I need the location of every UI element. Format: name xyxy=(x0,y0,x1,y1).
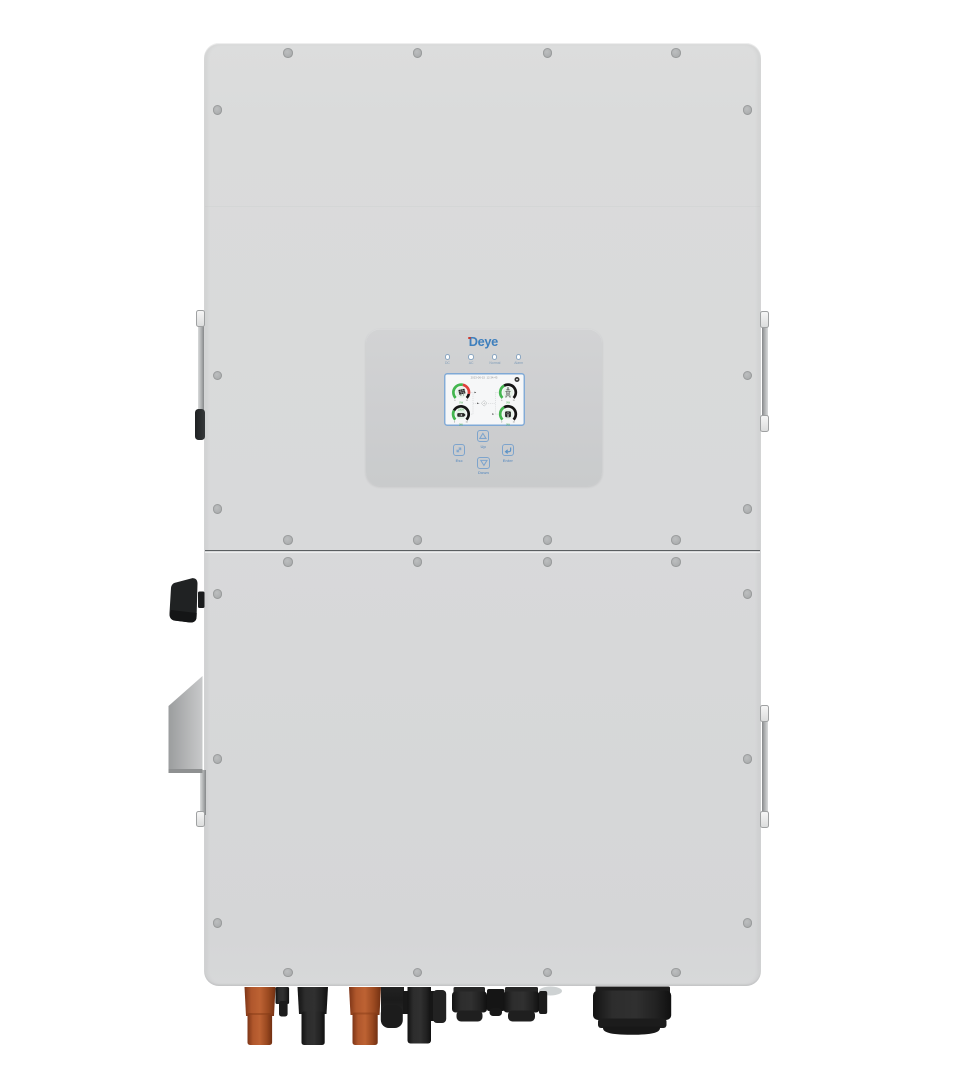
svg-text:0W: 0W xyxy=(459,401,463,405)
svg-text:0W: 0W xyxy=(506,422,510,426)
svg-text:100%: 100% xyxy=(457,408,464,412)
svg-text:2023-06-15 12:34:45: 2023-06-15 12:34:45 xyxy=(471,376,498,380)
svg-text:0W: 0W xyxy=(506,401,510,405)
svg-text:0W: 0W xyxy=(459,422,463,426)
